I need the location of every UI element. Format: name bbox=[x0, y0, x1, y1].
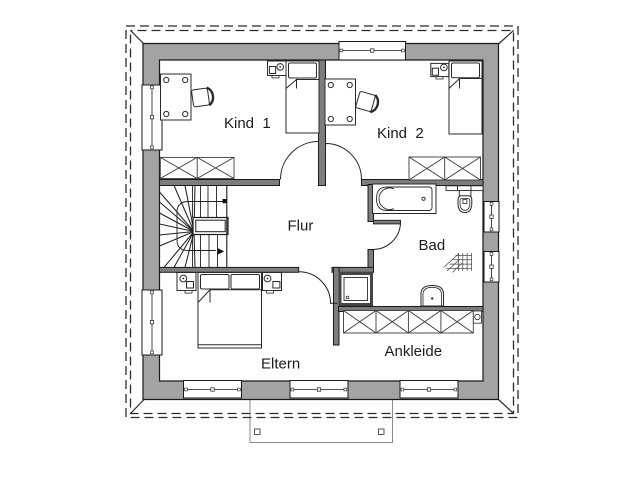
svg-text:Ankleide: Ankleide bbox=[385, 343, 443, 360]
svg-text:Bad: Bad bbox=[419, 237, 446, 254]
svg-text:Eltern: Eltern bbox=[261, 356, 300, 373]
svg-text:Kind 2: Kind 2 bbox=[377, 125, 424, 142]
svg-text:Kind 1: Kind 1 bbox=[224, 115, 271, 132]
svg-text:Flur: Flur bbox=[288, 218, 314, 235]
